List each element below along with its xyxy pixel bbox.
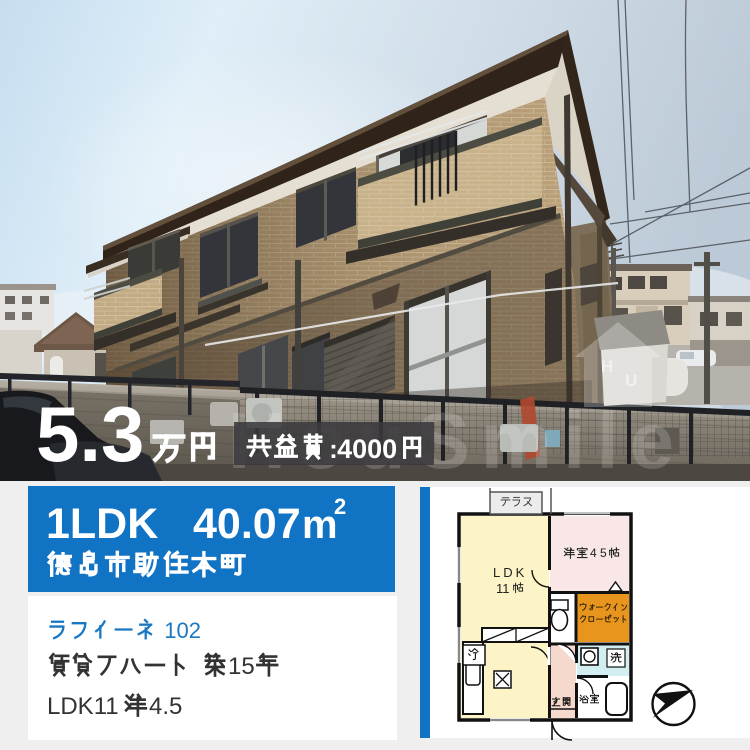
svg-text:15: 15	[228, 653, 255, 680]
svg-text:4: 4	[590, 546, 597, 560]
svg-text:LDK11: LDK11	[47, 693, 119, 720]
svg-text:4000: 4000	[337, 434, 397, 464]
svg-text:4.5: 4.5	[149, 693, 182, 720]
svg-text:U: U	[625, 371, 637, 390]
svg-text:11: 11	[496, 581, 510, 596]
svg-text:H: H	[601, 357, 613, 376]
svg-text:40.07: 40.07	[193, 500, 301, 548]
svg-text:LDK: LDK	[493, 565, 527, 580]
svg-text:5: 5	[600, 546, 607, 560]
svg-text:1LDK: 1LDK	[46, 500, 158, 548]
svg-text:m: m	[302, 503, 338, 547]
svg-text:5.3: 5.3	[36, 390, 144, 478]
svg-text:102: 102	[164, 618, 201, 643]
svg-text:2: 2	[334, 494, 346, 519]
